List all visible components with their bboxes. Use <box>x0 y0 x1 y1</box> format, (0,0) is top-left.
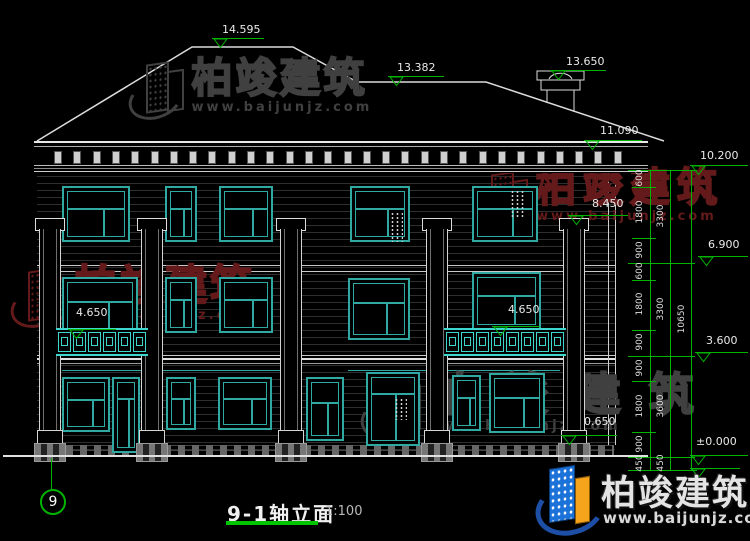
elevation-value: 10.200 <box>700 149 739 162</box>
vent-grille <box>390 212 403 242</box>
logo-url-text: www.baijunjz.com <box>603 509 750 527</box>
dentil-block <box>614 151 622 164</box>
dentil-block <box>440 151 448 164</box>
window-mullion <box>523 397 525 427</box>
dentil-block <box>344 151 352 164</box>
title-underline <box>226 521 318 525</box>
window-inner-frame <box>494 378 540 428</box>
drawing-scale: 1:100 <box>325 504 362 519</box>
window <box>62 377 110 432</box>
elevation-marker-triangle-icon <box>562 435 578 446</box>
vent-grille <box>394 398 407 420</box>
window-inner-frame <box>477 277 536 325</box>
elevation-value: 4.650 <box>76 306 108 319</box>
pilaster-stone-base <box>136 443 168 462</box>
dentil-block <box>363 151 371 164</box>
railing-lattice-cell <box>476 332 489 352</box>
dimension-value: 3300 <box>656 186 666 246</box>
elevation-marker-triangle-icon <box>569 215 585 226</box>
window <box>350 186 410 242</box>
dimension-chain-line <box>650 170 651 470</box>
window-inner-frame <box>457 380 476 426</box>
cornice-molding-line <box>34 168 648 169</box>
dimension-chain-line <box>670 170 671 470</box>
railing-lattice-cell <box>88 332 101 352</box>
window <box>112 377 140 453</box>
dimension-value: 3300 <box>656 279 666 339</box>
cornice-molding-line <box>34 171 648 172</box>
dentil-block <box>575 151 583 164</box>
pilaster-stone-base <box>275 443 307 462</box>
elevation-marker-triangle-icon <box>551 70 567 81</box>
elevation-marker-triangle-icon <box>696 352 712 363</box>
window <box>472 272 541 330</box>
railing-lattice-cell <box>521 332 534 352</box>
window-transom <box>68 399 104 401</box>
window-inner-frame <box>223 382 267 425</box>
window-mullion <box>386 302 388 334</box>
railing-lattice-cell <box>103 332 116 352</box>
window <box>62 186 130 242</box>
cornice-molding-line <box>34 165 648 166</box>
elevation-value: ±0.000 <box>696 435 737 448</box>
dentil-block <box>421 151 429 164</box>
window <box>219 277 273 333</box>
brand-logo: 柏竣建筑 www.baijunjz.com <box>533 461 750 541</box>
window <box>165 277 197 333</box>
dentil-block <box>305 151 313 164</box>
window-transom <box>225 208 267 210</box>
watermark-url-text: www.baijunjz.com <box>192 101 373 114</box>
window <box>219 186 273 242</box>
elevation-marker-triangle-icon <box>493 326 509 337</box>
dentil-block <box>151 151 159 164</box>
watermark-brand-text: 柏竣建筑 <box>192 58 373 99</box>
railing-lattice-cell <box>446 332 459 352</box>
railing-lattice-cell <box>118 332 131 352</box>
window-transom <box>354 302 404 304</box>
elevation-value: 6.900 <box>708 238 740 251</box>
dentil-block <box>537 151 545 164</box>
window-inner-frame <box>371 377 415 441</box>
elevation-marker-triangle-icon <box>585 140 601 151</box>
window <box>348 278 410 340</box>
elevation-value: 0.650 <box>584 415 616 428</box>
elevation-value: 11.090 <box>600 124 639 137</box>
window <box>165 186 197 242</box>
window-mullion <box>108 301 110 331</box>
dentil-block <box>131 151 139 164</box>
dentil-block <box>228 151 236 164</box>
railing-lattice-cell <box>461 332 474 352</box>
window-transom <box>225 299 267 301</box>
dentil-block <box>324 151 332 164</box>
window-mullion <box>103 208 105 236</box>
window-inner-frame <box>353 283 405 335</box>
dentil-block <box>459 151 467 164</box>
dentil-block <box>112 151 120 164</box>
dentil-block <box>382 151 390 164</box>
pilaster-stone-base <box>34 443 66 462</box>
pilaster-shaft <box>280 229 302 431</box>
dimension-value: 10650 <box>677 289 687 349</box>
window-transom <box>458 397 475 399</box>
railing-lattice-cell <box>551 332 564 352</box>
dentil-block <box>208 151 216 164</box>
window-inner-frame <box>311 382 339 436</box>
window-transom <box>224 398 266 400</box>
window-inner-frame <box>170 282 192 328</box>
watermark-text: 柏竣建筑www.baijunjz.com <box>536 168 724 223</box>
dentil-block <box>594 151 602 164</box>
window-transom <box>495 397 539 399</box>
window-inner-frame <box>224 282 268 328</box>
dentil-block <box>247 151 255 164</box>
elevation-marker-triangle-icon <box>69 329 85 340</box>
dentil-block <box>517 151 525 164</box>
window-mullion <box>252 299 254 327</box>
elevation-drawing-canvas: 9-1轴立面 1:100 9 柏竣建筑 www.baijunjz.com 14.… <box>0 0 750 541</box>
elevation-value: 4.650 <box>508 303 540 316</box>
elevation-value: 3.600 <box>706 334 738 347</box>
window-transom <box>372 393 414 395</box>
axis-grid-bubble: 9 <box>40 489 66 515</box>
dentil-block <box>93 151 101 164</box>
window-transom <box>356 208 404 210</box>
window-mullion <box>183 299 185 327</box>
window-transom <box>478 295 535 297</box>
window <box>366 372 420 446</box>
logo-building-icon <box>549 465 575 523</box>
cornice-molding-line <box>34 146 648 147</box>
window-mullion <box>469 397 471 425</box>
dentil-block <box>73 151 81 164</box>
elevation-marker-triangle-icon <box>389 76 405 87</box>
window <box>452 375 481 431</box>
dentil-block <box>498 151 506 164</box>
window-mullion <box>92 399 94 426</box>
dentil-block <box>266 151 274 164</box>
dentil-block <box>54 151 62 164</box>
window-transom <box>118 398 134 400</box>
ground-line <box>3 455 648 457</box>
dimension-value: 3600 <box>656 376 666 436</box>
window-inner-frame <box>170 191 192 237</box>
window-inner-frame <box>67 191 125 237</box>
dentil-block <box>286 151 294 164</box>
logo-building-accent <box>575 476 590 524</box>
window-transom <box>68 301 132 303</box>
elevation-value: 8.450 <box>592 197 624 210</box>
window-mullion <box>252 208 254 236</box>
elevation-marker-triangle-icon <box>691 165 707 176</box>
window-inner-frame <box>224 191 268 237</box>
axis-stem-line <box>51 458 52 489</box>
window-mullion <box>183 208 185 236</box>
elevation-value: 14.595 <box>222 23 261 36</box>
window-mullion <box>183 398 185 424</box>
window-transom <box>68 208 124 210</box>
pilaster-shaft <box>563 229 585 431</box>
window-transom <box>312 402 338 404</box>
railing-lattice-cell <box>536 332 549 352</box>
dimension-chain-line <box>691 170 692 470</box>
elevation-value: 13.382 <box>397 61 436 74</box>
window <box>472 186 538 242</box>
eave-cornice <box>34 141 648 173</box>
watermark-top-center: 柏竣建筑www.baijunjz.com <box>128 58 372 124</box>
elevation-marker-triangle-icon <box>213 38 229 49</box>
window <box>166 377 196 430</box>
window <box>489 373 545 433</box>
dentil-block <box>170 151 178 164</box>
window-inner-frame <box>171 382 191 425</box>
window-inner-frame <box>67 382 105 427</box>
window-mullion <box>327 402 329 435</box>
watermark-text: 柏竣建筑www.baijunjz.com <box>192 58 373 114</box>
elevation-value: 13.650 <box>566 55 605 68</box>
dentil-block <box>401 151 409 164</box>
window-mullion <box>128 398 130 447</box>
dentil-block <box>556 151 564 164</box>
window-inner-frame <box>117 382 135 448</box>
window-mullion <box>251 398 253 424</box>
window-transom <box>171 299 191 301</box>
pilaster-stone-base <box>421 443 453 462</box>
window <box>218 377 272 430</box>
vent-grille <box>510 190 526 218</box>
window-transom <box>172 398 190 400</box>
window <box>306 377 344 441</box>
elevation-marker-triangle-icon <box>699 256 715 267</box>
watermark-logo-icon <box>128 58 192 124</box>
railing-lattice-cell <box>133 332 146 352</box>
dentil-block <box>479 151 487 164</box>
window-mullion <box>387 208 389 236</box>
dentil-block <box>189 151 197 164</box>
window-transom <box>171 208 191 210</box>
